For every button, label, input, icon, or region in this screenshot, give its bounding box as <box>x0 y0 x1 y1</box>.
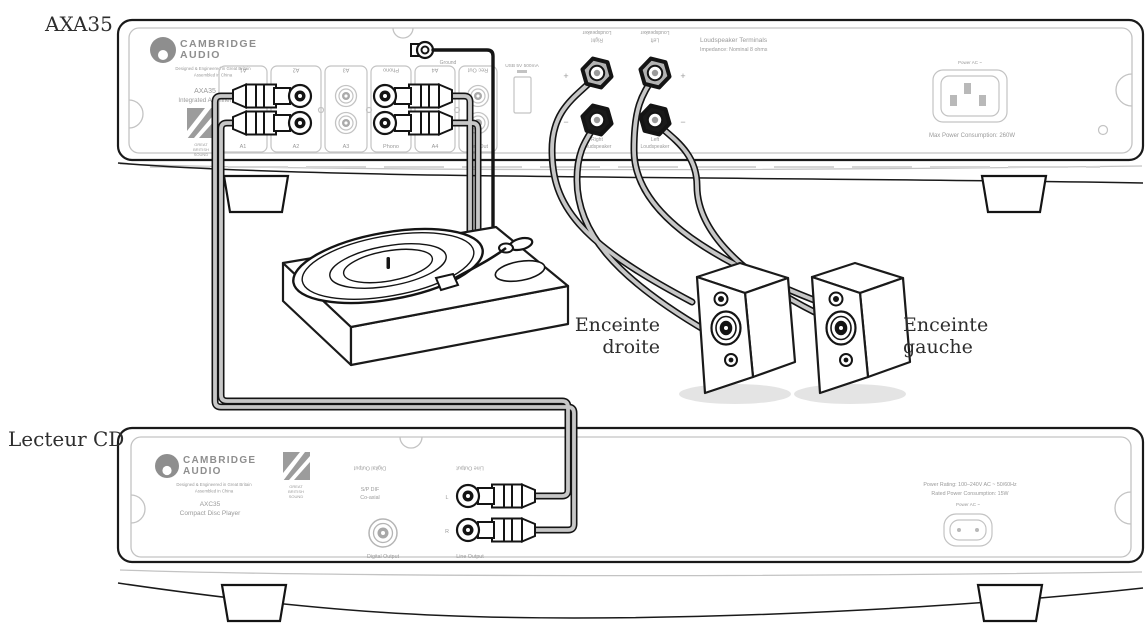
plus-sign-right: + <box>563 71 568 81</box>
speaker-left-box <box>794 263 910 404</box>
minus-sign-right: − <box>563 117 568 127</box>
speaker-left-label-1: Enceinte <box>903 314 988 336</box>
left-terminal-label2: Loudspeaker <box>641 144 670 150</box>
amp-power-ac-label: Power AC ~ <box>958 60 982 65</box>
line-output-label-flipped: Line Output <box>456 465 484 471</box>
rca-plug-phono-top <box>374 85 452 108</box>
input-label-a4-flipped: A4 <box>432 67 439 73</box>
input-label-a4: A4 <box>432 144 439 150</box>
line-out-r: R <box>445 529 449 535</box>
ground-label: Ground <box>440 60 457 66</box>
plus-sign-left: + <box>680 71 685 81</box>
speaker-right-label-2: droite <box>602 336 660 358</box>
cd-brand-name1: CAMBRIDGE <box>183 455 256 466</box>
line-output-label: Line Output <box>456 554 484 560</box>
left-terminal-label1: Left <box>651 137 660 143</box>
cd-power-ac-label: Power AC ~ <box>956 502 980 507</box>
digital-output-label: Digital Output <box>367 554 400 560</box>
rca-plug-a2-bottom <box>233 112 311 135</box>
left-terminal-flipped2: Loudspeaker <box>640 29 669 35</box>
minus-sign-left: − <box>680 117 685 127</box>
input-label-a2-flipped: A2 <box>293 67 300 73</box>
coax-jack <box>369 519 397 547</box>
amp-foot-left <box>224 176 288 212</box>
amp-brand-name2: AUDIO <box>180 49 221 61</box>
rca-plug-a2-top <box>233 85 311 108</box>
connection-diagram: CAMBRIDGE AUDIO Designed & Engineered in… <box>0 0 1148 629</box>
cd-model: AXC35 <box>200 501 221 508</box>
diagram-canvas: CAMBRIDGE AUDIO Designed & Engineered in… <box>0 0 1148 629</box>
digital-output-label-flipped: Digital Output <box>353 465 386 471</box>
speaker-right-box <box>679 263 795 404</box>
speaker-left-label-2: gauche <box>903 336 973 358</box>
turntable <box>283 216 568 365</box>
cd-tagline2: Assembled in China <box>195 489 234 494</box>
cd-bottom-groove <box>120 570 1142 576</box>
terminals-subtitle: Impedance: Nominal 8 ohms <box>700 47 768 53</box>
cd-player: CAMBRIDGE AUDIO Designed & Engineered in… <box>118 428 1143 621</box>
input-label-a3-flipped: A3 <box>343 67 350 73</box>
cd-power-consumption: Rated Power Consumption: 15W <box>931 491 1008 497</box>
cd-power-rating: Power Rating: 100–240V AC ~ 50/60Hz <box>923 482 1017 488</box>
input-label-a1-flipped: A1 <box>240 67 247 73</box>
rca-jack-a3-top <box>336 86 357 107</box>
cd-brand-name2: AUDIO <box>183 466 222 477</box>
input-label-a2: A2 <box>293 144 300 150</box>
cd-model-desc: Compact Disc Player <box>180 510 242 517</box>
speaker-right-label-1: Enceinte <box>575 314 660 336</box>
right-terminal-flipped1: Right <box>591 37 603 43</box>
terminals-title: Loudspeaker Terminals <box>700 37 768 44</box>
amp-model: AXA35 <box>194 88 216 95</box>
amp-badge3: SOUND <box>194 152 209 157</box>
amplifier-callout-label: AXA35 <box>44 12 113 36</box>
rca-plug-phono-bottom <box>374 112 452 135</box>
cd-foot-left <box>222 585 286 621</box>
rca-plug-lineout-l <box>457 485 535 508</box>
right-terminal-flipped2: Loudspeaker <box>582 29 611 35</box>
rca-plug-lineout-r <box>457 519 535 542</box>
input-label-a3: A3 <box>343 144 350 150</box>
input-label-phono-flipped: Phono <box>383 67 399 73</box>
right-terminal-label1: Right <box>591 137 603 143</box>
rca-jack-a3-bottom <box>336 113 357 134</box>
spindle <box>387 257 391 269</box>
input-label-phono: Phono <box>383 144 399 150</box>
left-terminal-flipped1: Left <box>650 37 659 43</box>
amp-tagline2: Assembled in China <box>194 73 233 78</box>
input-label-a1: A1 <box>240 144 247 150</box>
usb-label: USB 5V 500mA <box>505 63 539 69</box>
line-out-l: L <box>446 495 449 501</box>
cd-foot-right <box>978 585 1042 621</box>
cd-callout-label: Lecteur CD <box>8 427 124 451</box>
amp-foot-right <box>982 176 1046 212</box>
coaxial-label: Co-axial <box>360 495 379 501</box>
cd-badge3: SOUND <box>289 494 304 499</box>
spdif-label: S/P DIF <box>361 487 380 493</box>
amp-power-consumption: Max Power Consumption: 260W <box>929 133 1015 139</box>
cd-tagline1: Designed & Engineered in Great Britain <box>176 482 252 487</box>
input-label-recout-flipped: Rec Out <box>467 67 488 73</box>
